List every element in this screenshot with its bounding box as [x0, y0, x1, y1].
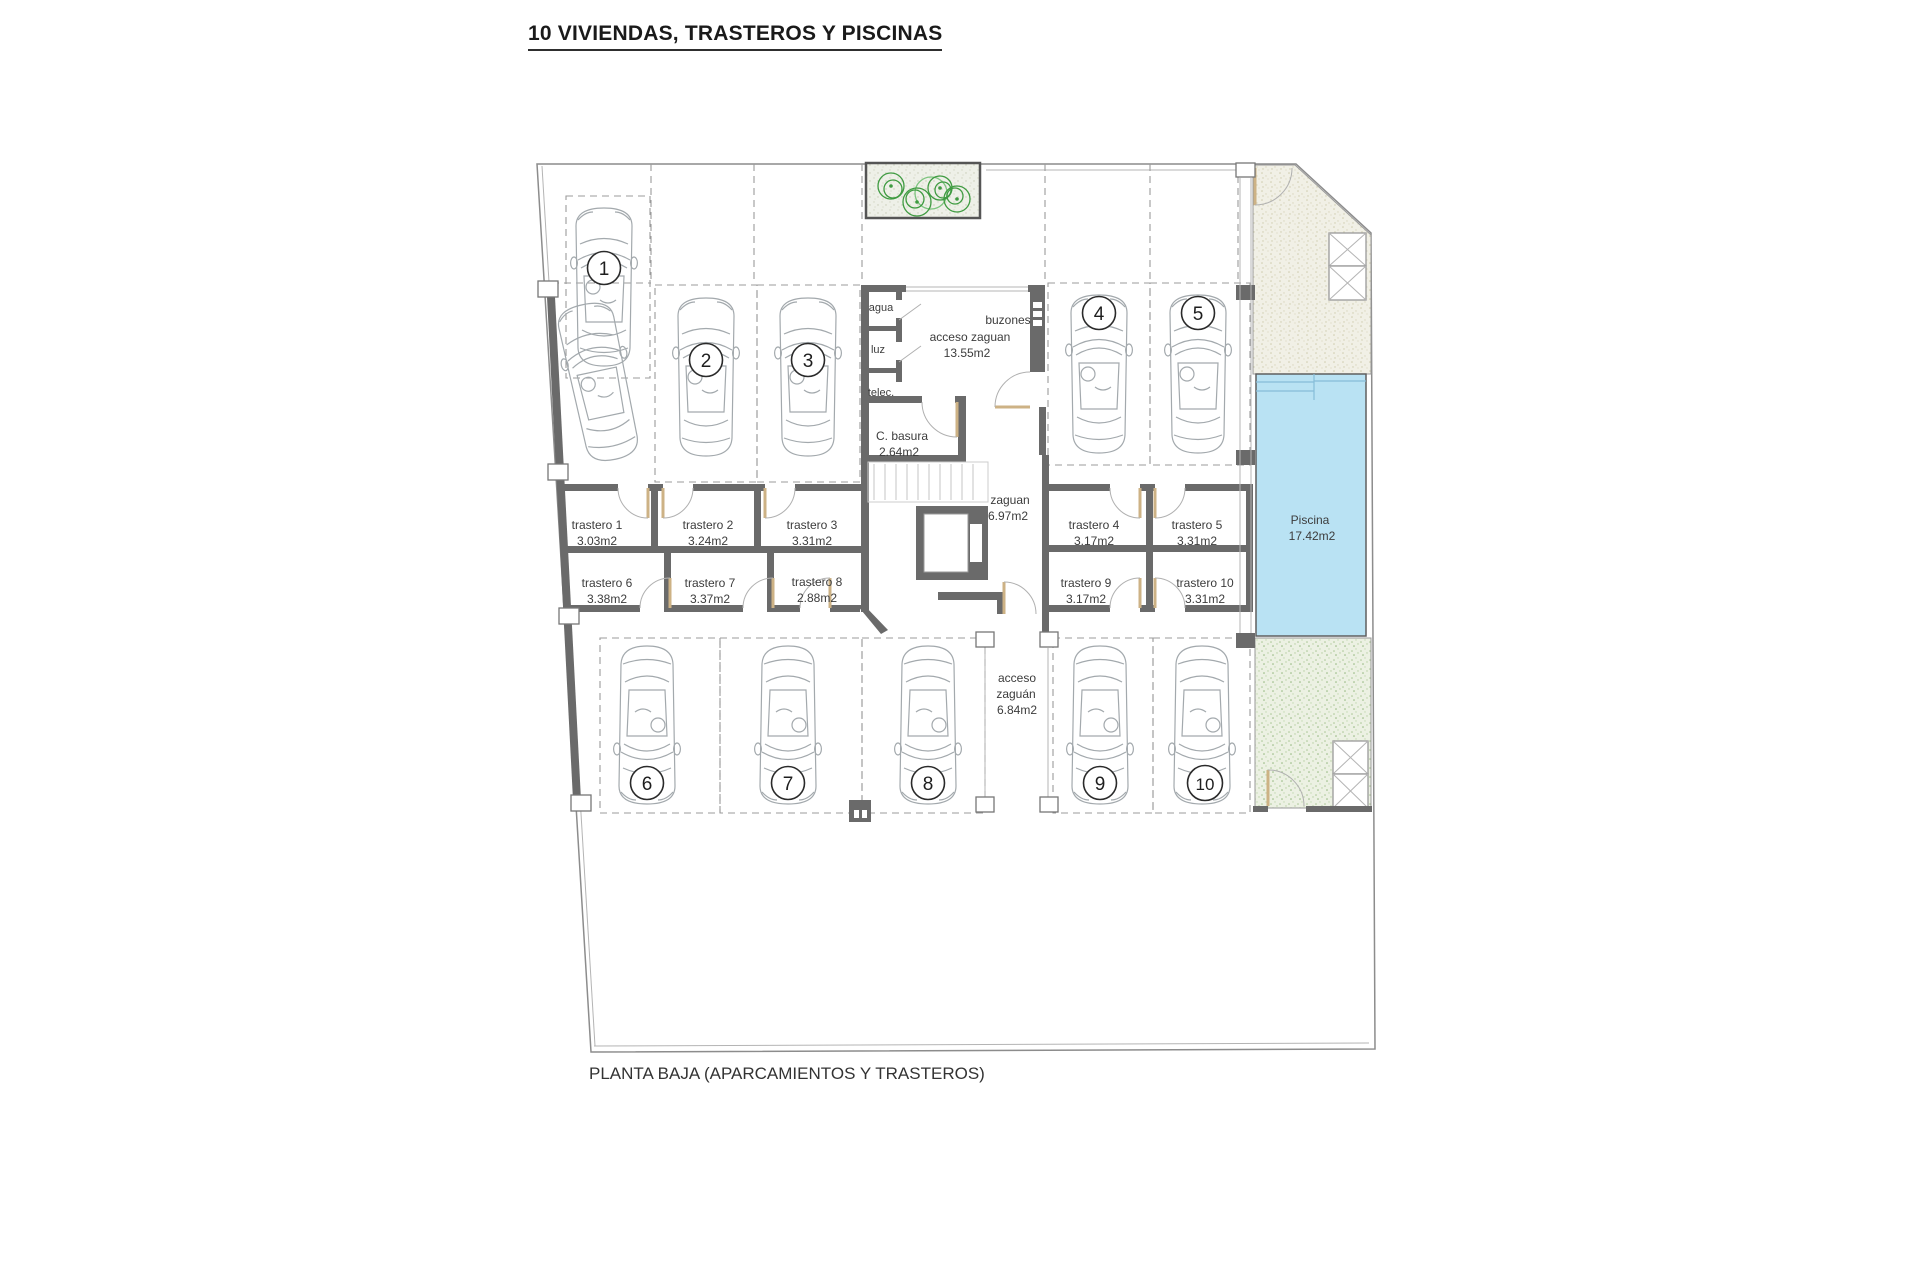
- planter: [866, 163, 980, 218]
- room-label-c-basura: C. basura: [876, 429, 928, 443]
- svg-text:4: 4: [1094, 304, 1105, 325]
- room-label-acceso-bajo-1: acceso: [998, 671, 1036, 685]
- svg-text:6: 6: [642, 774, 653, 795]
- pool: Piscina 17.42m2: [1256, 374, 1366, 636]
- svg-text:2: 2: [701, 351, 712, 372]
- parking-space-2: 2: [690, 344, 723, 377]
- room-label-zaguan: zaguan: [990, 493, 1029, 507]
- pool-area: 17.42m2: [1289, 529, 1336, 543]
- trastero-6-area: 3.38m2: [587, 592, 627, 606]
- trastero-9-label: trastero 9: [1061, 576, 1112, 590]
- parking-space-7: 7: [772, 767, 805, 800]
- trastero-7-label: trastero 7: [685, 576, 736, 590]
- svg-text:1: 1: [599, 259, 610, 280]
- car-top-view: [550, 298, 648, 466]
- trastero-4-label: trastero 4: [1069, 518, 1120, 532]
- trastero-6-label: trastero 6: [582, 576, 633, 590]
- svg-text:8: 8: [923, 774, 934, 795]
- trastero-2-area: 3.24m2: [688, 534, 728, 548]
- parking-space-3: 3: [792, 344, 825, 377]
- trastero-5-area: 3.31m2: [1177, 534, 1217, 548]
- stairs: [868, 462, 988, 502]
- elevator: [916, 506, 988, 580]
- room-label-agua: agua: [869, 302, 894, 314]
- parking-space-6: 6: [631, 767, 664, 800]
- trastero-2-label: trastero 2: [683, 518, 734, 532]
- svg-text:10: 10: [1196, 775, 1215, 794]
- room-label-luz: luz: [871, 344, 885, 356]
- svg-text:7: 7: [783, 774, 794, 795]
- trastero-1-label: trastero 1: [572, 518, 623, 532]
- trastero-8-area: 2.88m2: [797, 591, 837, 605]
- trastero-3-label: trastero 3: [787, 518, 838, 532]
- parking-space-8: 8: [912, 767, 945, 800]
- trastero-7-area: 3.37m2: [690, 592, 730, 606]
- svg-text:5: 5: [1193, 304, 1204, 325]
- trastero-3-area: 3.31m2: [792, 534, 832, 548]
- room-area-acceso-bajo: 6.84m2: [997, 703, 1037, 717]
- trastero-8-label: trastero 8: [792, 575, 843, 589]
- skylight-grate-icon: [1333, 741, 1368, 808]
- pool-label: Piscina: [1291, 513, 1330, 527]
- svg-text:9: 9: [1095, 774, 1106, 795]
- floor-plan-drawing: Piscina 17.42m2: [0, 0, 1920, 1280]
- garden-bottom-right: [1253, 638, 1372, 812]
- parking-space-5: 5: [1182, 297, 1215, 330]
- svg-text:3: 3: [803, 351, 814, 372]
- room-label-acceso-bajo-2: zaguán: [996, 687, 1035, 701]
- parking-space-1: 1: [588, 252, 621, 285]
- parking-space-4: 4: [1083, 297, 1116, 330]
- room-label-buzones: buzones: [985, 313, 1030, 327]
- room-label-telec: telec.: [868, 387, 894, 399]
- trastero-10-area: 3.31m2: [1185, 592, 1225, 606]
- parking-space-9: 9: [1084, 767, 1117, 800]
- skylight-grate-icon: [1329, 233, 1366, 300]
- room-area-acceso-zaguan: 13.55m2: [944, 346, 991, 360]
- room-area-zaguan: 6.97m2: [988, 509, 1028, 523]
- room-label-acceso-zaguan: acceso zaguan: [930, 330, 1011, 344]
- garden-top-right: [1253, 165, 1371, 374]
- room-area-c-basura: 2.64m2: [879, 445, 919, 459]
- plan-caption: PLANTA BAJA (APARCAMIENTOS Y TRASTEROS): [589, 1064, 985, 1084]
- trastero-5-label: trastero 5: [1172, 518, 1223, 532]
- page: 10 VIVIENDAS, TRASTEROS Y PISCINAS: [0, 0, 1920, 1280]
- trastero-10-label: trastero 10: [1176, 576, 1234, 590]
- trastero-1-area: 3.03m2: [577, 534, 617, 548]
- trastero-9-area: 3.17m2: [1066, 592, 1106, 606]
- trastero-4-area: 3.17m2: [1074, 534, 1114, 548]
- car-top-view: [571, 208, 638, 366]
- parking-space-10: 10: [1188, 766, 1223, 801]
